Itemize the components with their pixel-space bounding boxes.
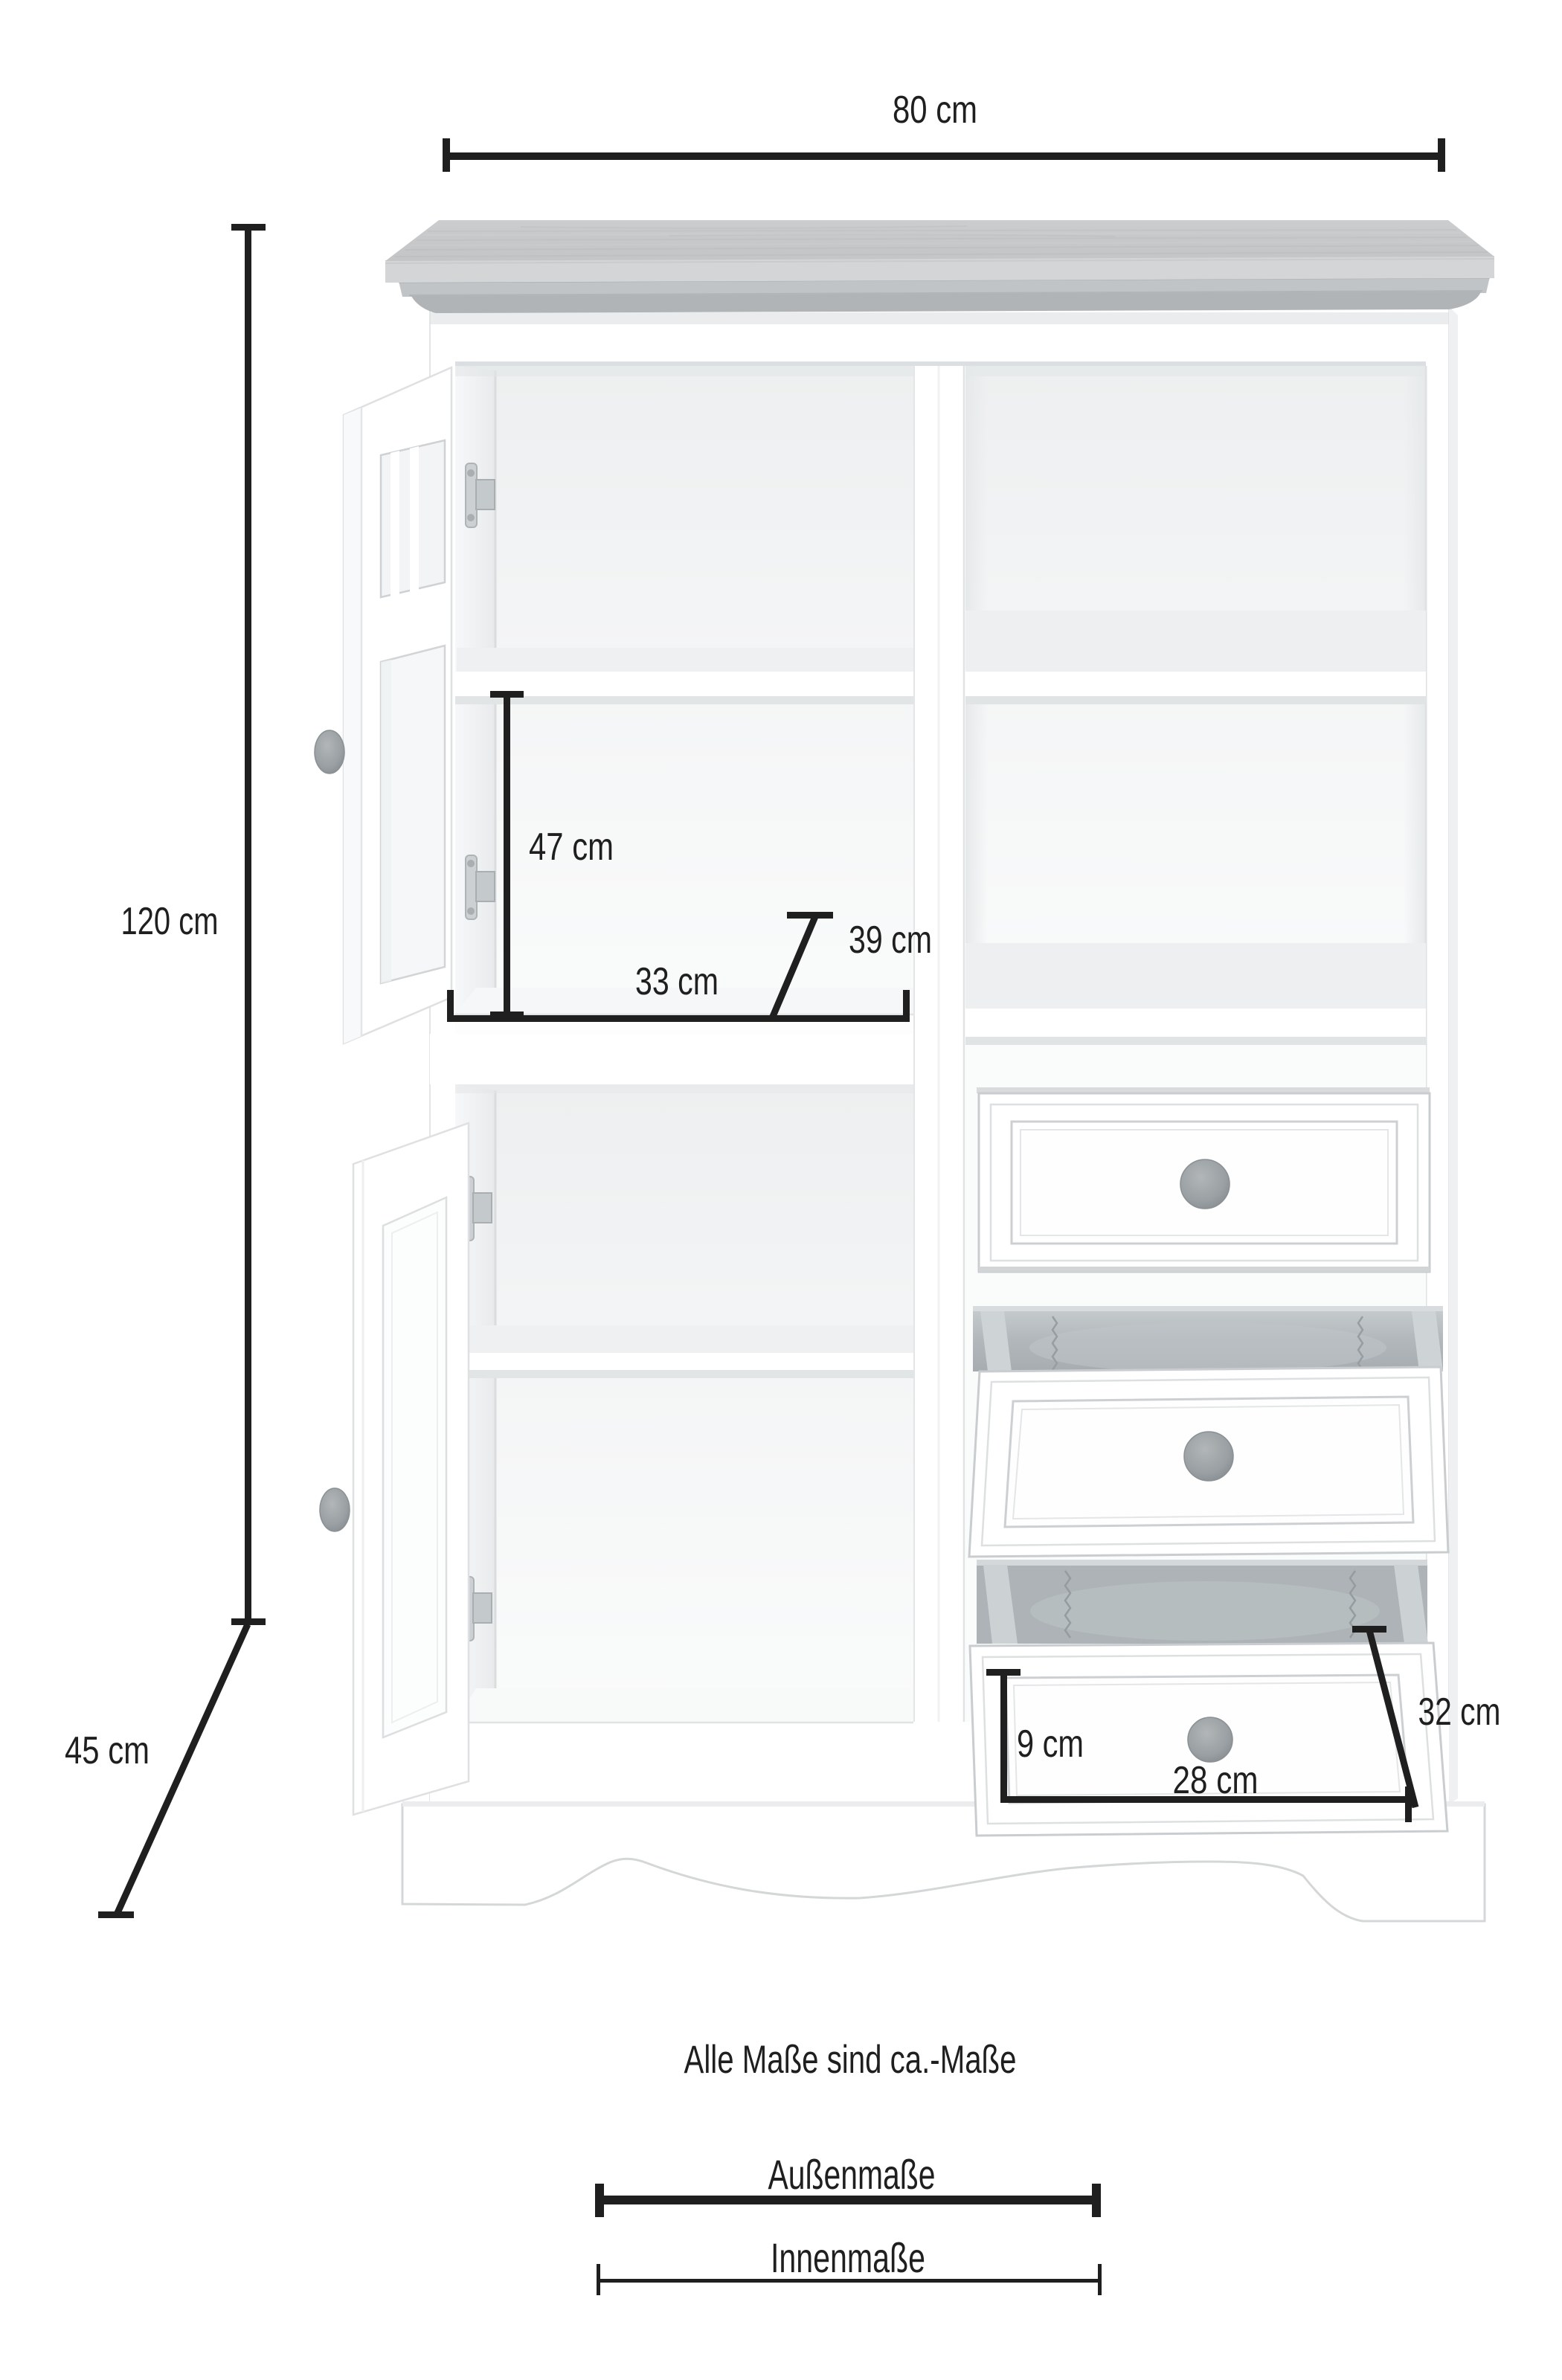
svg-text:80 cm: 80 cm xyxy=(893,89,977,132)
svg-text:32 cm: 32 cm xyxy=(1418,1691,1501,1734)
svg-text:9 cm: 9 cm xyxy=(1017,1723,1084,1766)
svg-text:47 cm: 47 cm xyxy=(529,826,614,869)
svg-text:120 cm: 120 cm xyxy=(121,900,219,943)
svg-text:39 cm: 39 cm xyxy=(849,919,932,962)
svg-text:45 cm: 45 cm xyxy=(65,1729,150,1772)
svg-text:33 cm: 33 cm xyxy=(635,960,719,1003)
svg-text:Außenmaße: Außenmaße xyxy=(768,2151,936,2198)
svg-text:Innenmaße: Innenmaße xyxy=(771,2234,925,2281)
svg-text:Alle Maße sind ca.-Maße: Alle Maße sind ca.-Maße xyxy=(684,2038,1017,2082)
svg-text:28 cm: 28 cm xyxy=(1173,1759,1259,1802)
